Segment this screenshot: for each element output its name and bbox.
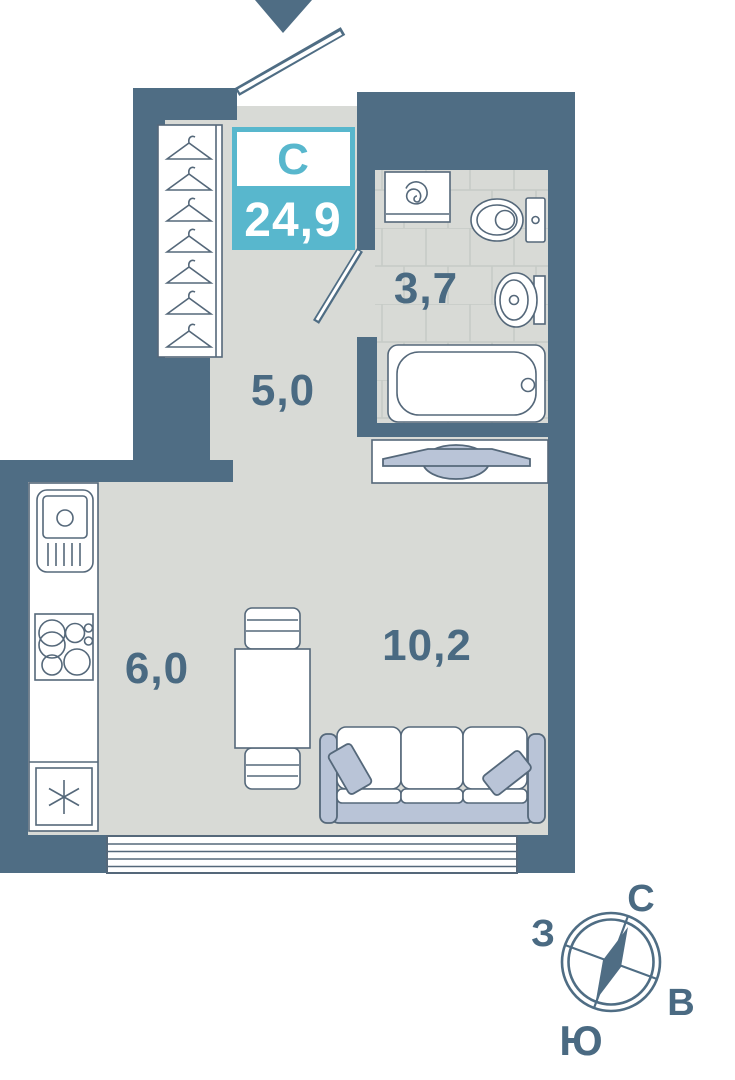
floor-plan-drawing: С 24,9 xyxy=(0,0,735,1080)
wall-top-right-block xyxy=(357,92,575,170)
wall-left-exterior xyxy=(0,462,28,835)
unit-label-badge: С 24,9 xyxy=(232,127,355,250)
bathroom-area-label: 3,7 xyxy=(394,264,458,313)
wall-bathroom-bottom xyxy=(357,423,548,437)
unit-total-area: 24,9 xyxy=(244,194,341,247)
compass-east-label: В xyxy=(667,982,694,1024)
chair-icon xyxy=(245,748,300,789)
kitchen-area-label: 6,0 xyxy=(125,644,189,693)
sofa-icon xyxy=(320,727,545,823)
chair-icon xyxy=(245,608,300,649)
table-icon xyxy=(235,649,310,748)
living-area-label: 10,2 xyxy=(382,621,472,670)
compass: С З В Ю xyxy=(531,878,695,1064)
toilet-icon xyxy=(471,198,545,242)
bathroom-sink-icon xyxy=(495,273,545,327)
wall-bathroom-lower xyxy=(357,337,377,423)
bathtub-icon xyxy=(388,345,545,422)
window-icon xyxy=(107,836,517,873)
wall-bottom-right-corner xyxy=(517,835,575,873)
unit-type-label: С xyxy=(277,135,309,184)
floor-entrance-threshold xyxy=(237,106,357,120)
entrance-door-leaf-icon xyxy=(237,31,343,92)
compass-north-label: С xyxy=(627,878,654,920)
stove-icon xyxy=(35,614,93,680)
compass-south-label: Ю xyxy=(559,1017,602,1064)
floor-plan-page: С 24,9 xyxy=(0,0,735,1080)
hallway-area-label: 5,0 xyxy=(251,366,315,415)
entrance-arrow-icon xyxy=(255,0,312,33)
wardrobe-icon xyxy=(158,125,222,357)
wall-bottom-left-corner xyxy=(0,835,107,873)
kitchen-sink-icon xyxy=(37,490,93,572)
fridge-icon xyxy=(29,762,98,825)
compass-west-label: З xyxy=(531,913,555,955)
wall-top-left xyxy=(133,88,237,120)
closet-icon xyxy=(372,440,548,483)
wall-step-band xyxy=(0,460,233,482)
compass-needle-icon xyxy=(596,927,628,1000)
wall-bathroom-upper xyxy=(357,170,375,250)
wall-left-pier xyxy=(133,358,210,462)
wall-right-exterior xyxy=(548,92,575,835)
washing-machine-icon xyxy=(385,172,450,222)
